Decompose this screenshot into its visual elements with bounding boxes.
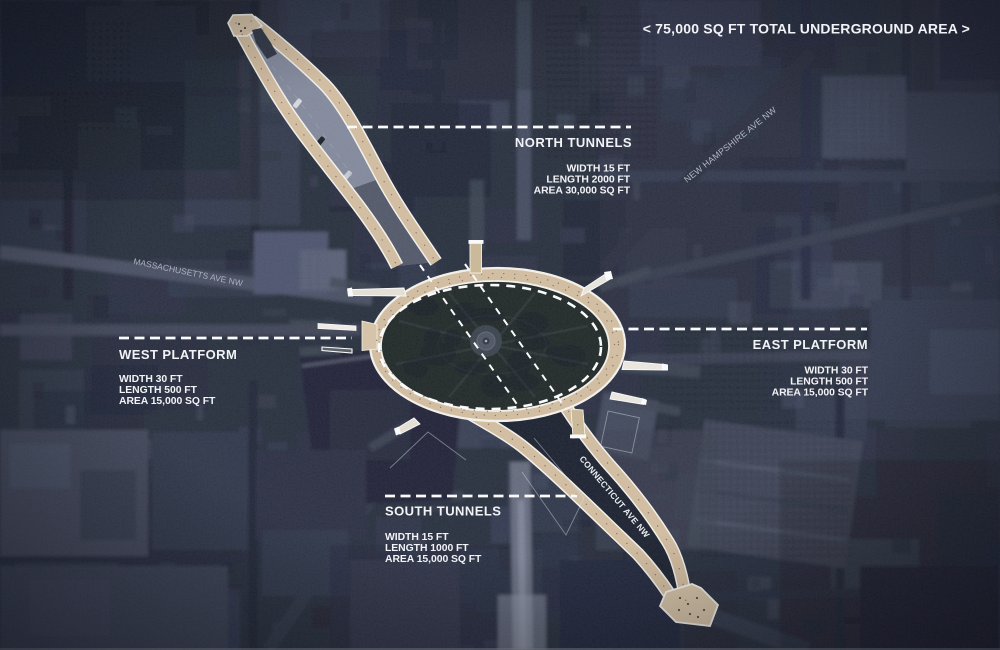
svg-text:AREA 15,000 SQ FT: AREA 15,000 SQ FT xyxy=(119,396,216,407)
svg-text:NORTH TUNNELS: NORTH TUNNELS xyxy=(515,135,632,150)
svg-text:AREA 15,000 SQ FT: AREA 15,000 SQ FT xyxy=(385,554,482,565)
svg-text:WEST PLATFORM: WEST PLATFORM xyxy=(119,347,237,362)
svg-text:LENGTH 500 FT: LENGTH 500 FT xyxy=(119,385,198,396)
svg-text:LENGTH 2000 FT: LENGTH 2000 FT xyxy=(546,175,630,186)
svg-text:WIDTH 30 FT: WIDTH 30 FT xyxy=(119,374,183,385)
svg-text:EAST PLATFORM: EAST PLATFORM xyxy=(753,337,868,352)
svg-text:AREA 15,000 SQ FT: AREA 15,000 SQ FT xyxy=(772,388,869,399)
svg-text:WIDTH 15 FT: WIDTH 15 FT xyxy=(385,532,449,543)
svg-text:SOUTH TUNNELS: SOUTH TUNNELS xyxy=(385,504,501,519)
svg-text:AREA 30,000 SQ FT: AREA 30,000 SQ FT xyxy=(534,186,631,197)
svg-text:WIDTH 30 FT: WIDTH 30 FT xyxy=(804,366,868,377)
svg-text:< 75,000 SQ FT TOTAL UNDERGROU: < 75,000 SQ FT TOTAL UNDERGROUND AREA > xyxy=(643,21,970,37)
svg-text:LENGTH 500 FT: LENGTH 500 FT xyxy=(790,377,869,388)
svg-text:LENGTH 1000 FT: LENGTH 1000 FT xyxy=(385,543,469,554)
svg-text:WIDTH 15 FT: WIDTH 15 FT xyxy=(566,164,630,175)
